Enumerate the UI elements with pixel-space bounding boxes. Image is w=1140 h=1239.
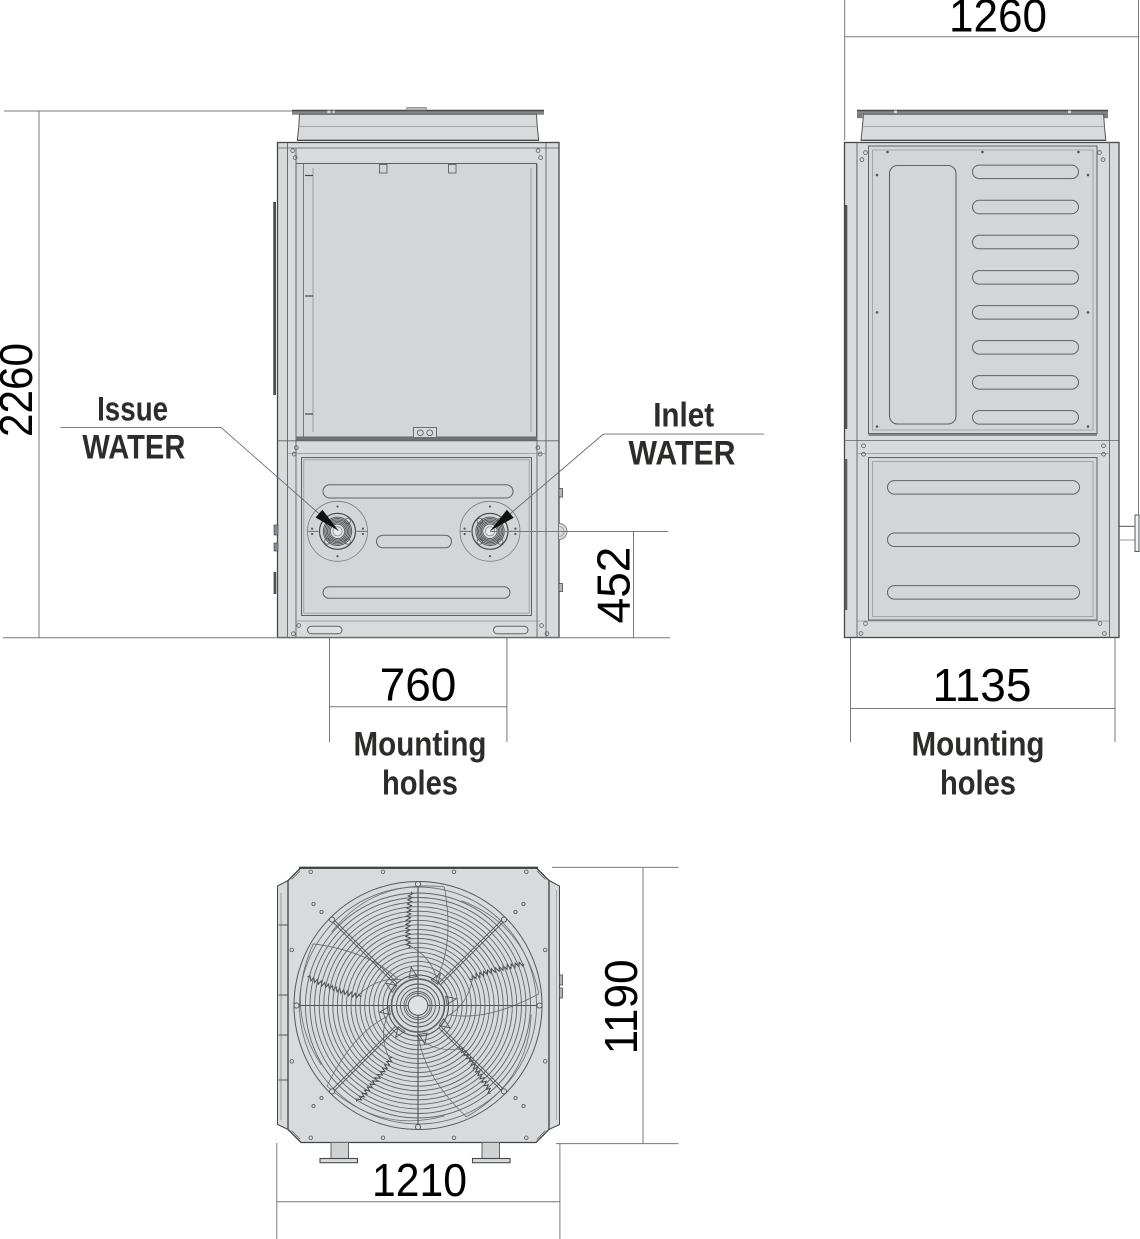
svg-text:Issue: Issue — [97, 391, 168, 429]
svg-text:452: 452 — [588, 547, 640, 624]
svg-text:2260: 2260 — [0, 343, 42, 437]
svg-text:1260: 1260 — [949, 0, 1047, 41]
svg-text:holes: holes — [940, 764, 1016, 802]
svg-text:Inlet: Inlet — [653, 397, 714, 435]
svg-text:Mounting: Mounting — [354, 726, 487, 764]
svg-text:1190: 1190 — [595, 959, 647, 1054]
svg-text:1210: 1210 — [372, 1154, 467, 1206]
svg-text:holes: holes — [382, 764, 458, 802]
svg-text:760: 760 — [380, 659, 457, 711]
svg-text:WATER: WATER — [629, 435, 736, 473]
svg-text:1135: 1135 — [933, 659, 1032, 711]
svg-text:WATER: WATER — [82, 429, 185, 467]
svg-text:Mounting: Mounting — [912, 726, 1045, 764]
